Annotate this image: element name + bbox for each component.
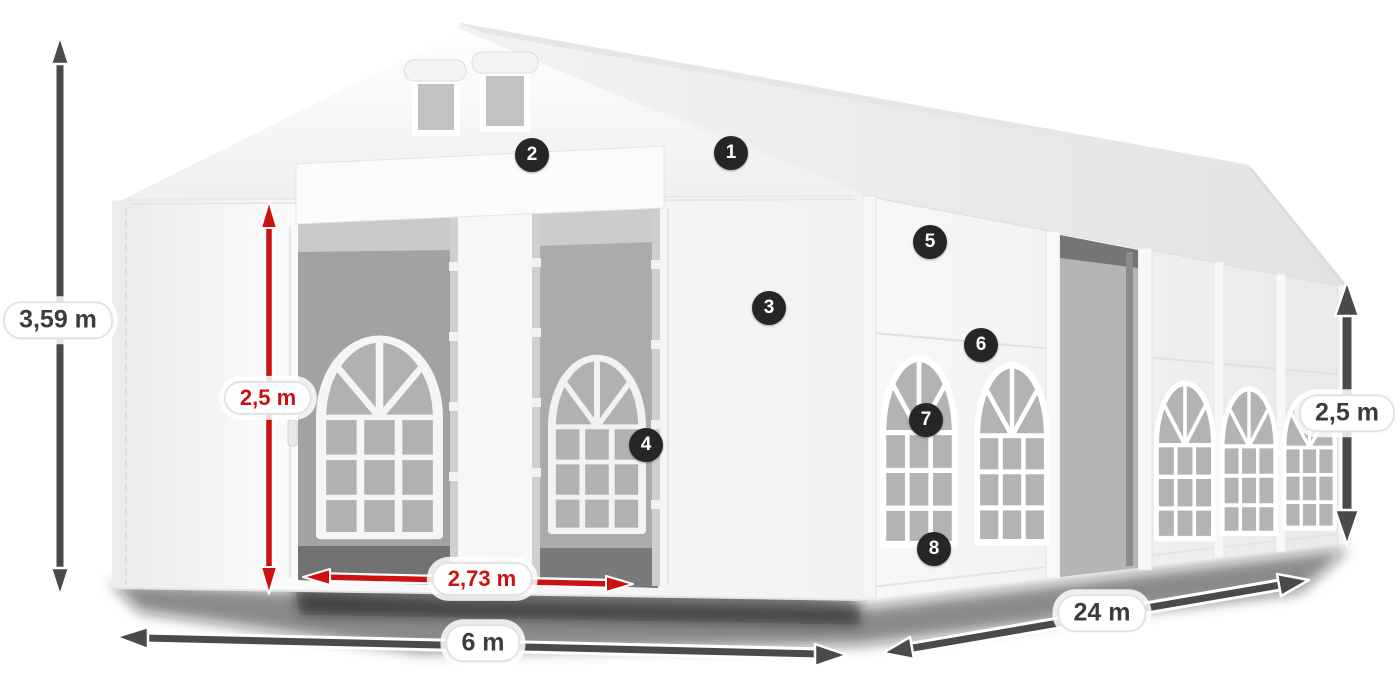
side-length-label: 24 m xyxy=(1058,594,1147,632)
tent-illustration xyxy=(0,0,1400,700)
callout-badge-2: 2 xyxy=(515,138,549,172)
front-width-label: 6 m xyxy=(445,624,520,662)
callout-badge-3: 3 xyxy=(752,291,786,325)
side-height-label: 2,5 m xyxy=(1299,394,1395,432)
callout-badge-6: 6 xyxy=(964,328,998,362)
gable-vent-right xyxy=(472,52,538,132)
side-door-opening xyxy=(1060,235,1138,577)
front-door-left xyxy=(298,212,456,586)
inner-height-label: 2,5 m xyxy=(224,381,312,415)
gable-vent-left xyxy=(404,60,466,136)
callout-badge-4: 4 xyxy=(629,428,663,462)
callout-badge-7: 7 xyxy=(909,403,943,437)
front-door-right xyxy=(534,202,658,588)
callout-badge-8: 8 xyxy=(917,532,951,566)
entrance-width-label: 2,73 m xyxy=(432,562,533,596)
callout-badge-5: 5 xyxy=(913,225,947,259)
tent-dimension-diagram: 3,59 m 2,5 m 2,73 m 6 m 24 m 2,5 m 1 2 3… xyxy=(0,0,1400,700)
total-height-label: 3,59 m xyxy=(3,301,113,339)
callout-badge-1: 1 xyxy=(714,136,748,170)
